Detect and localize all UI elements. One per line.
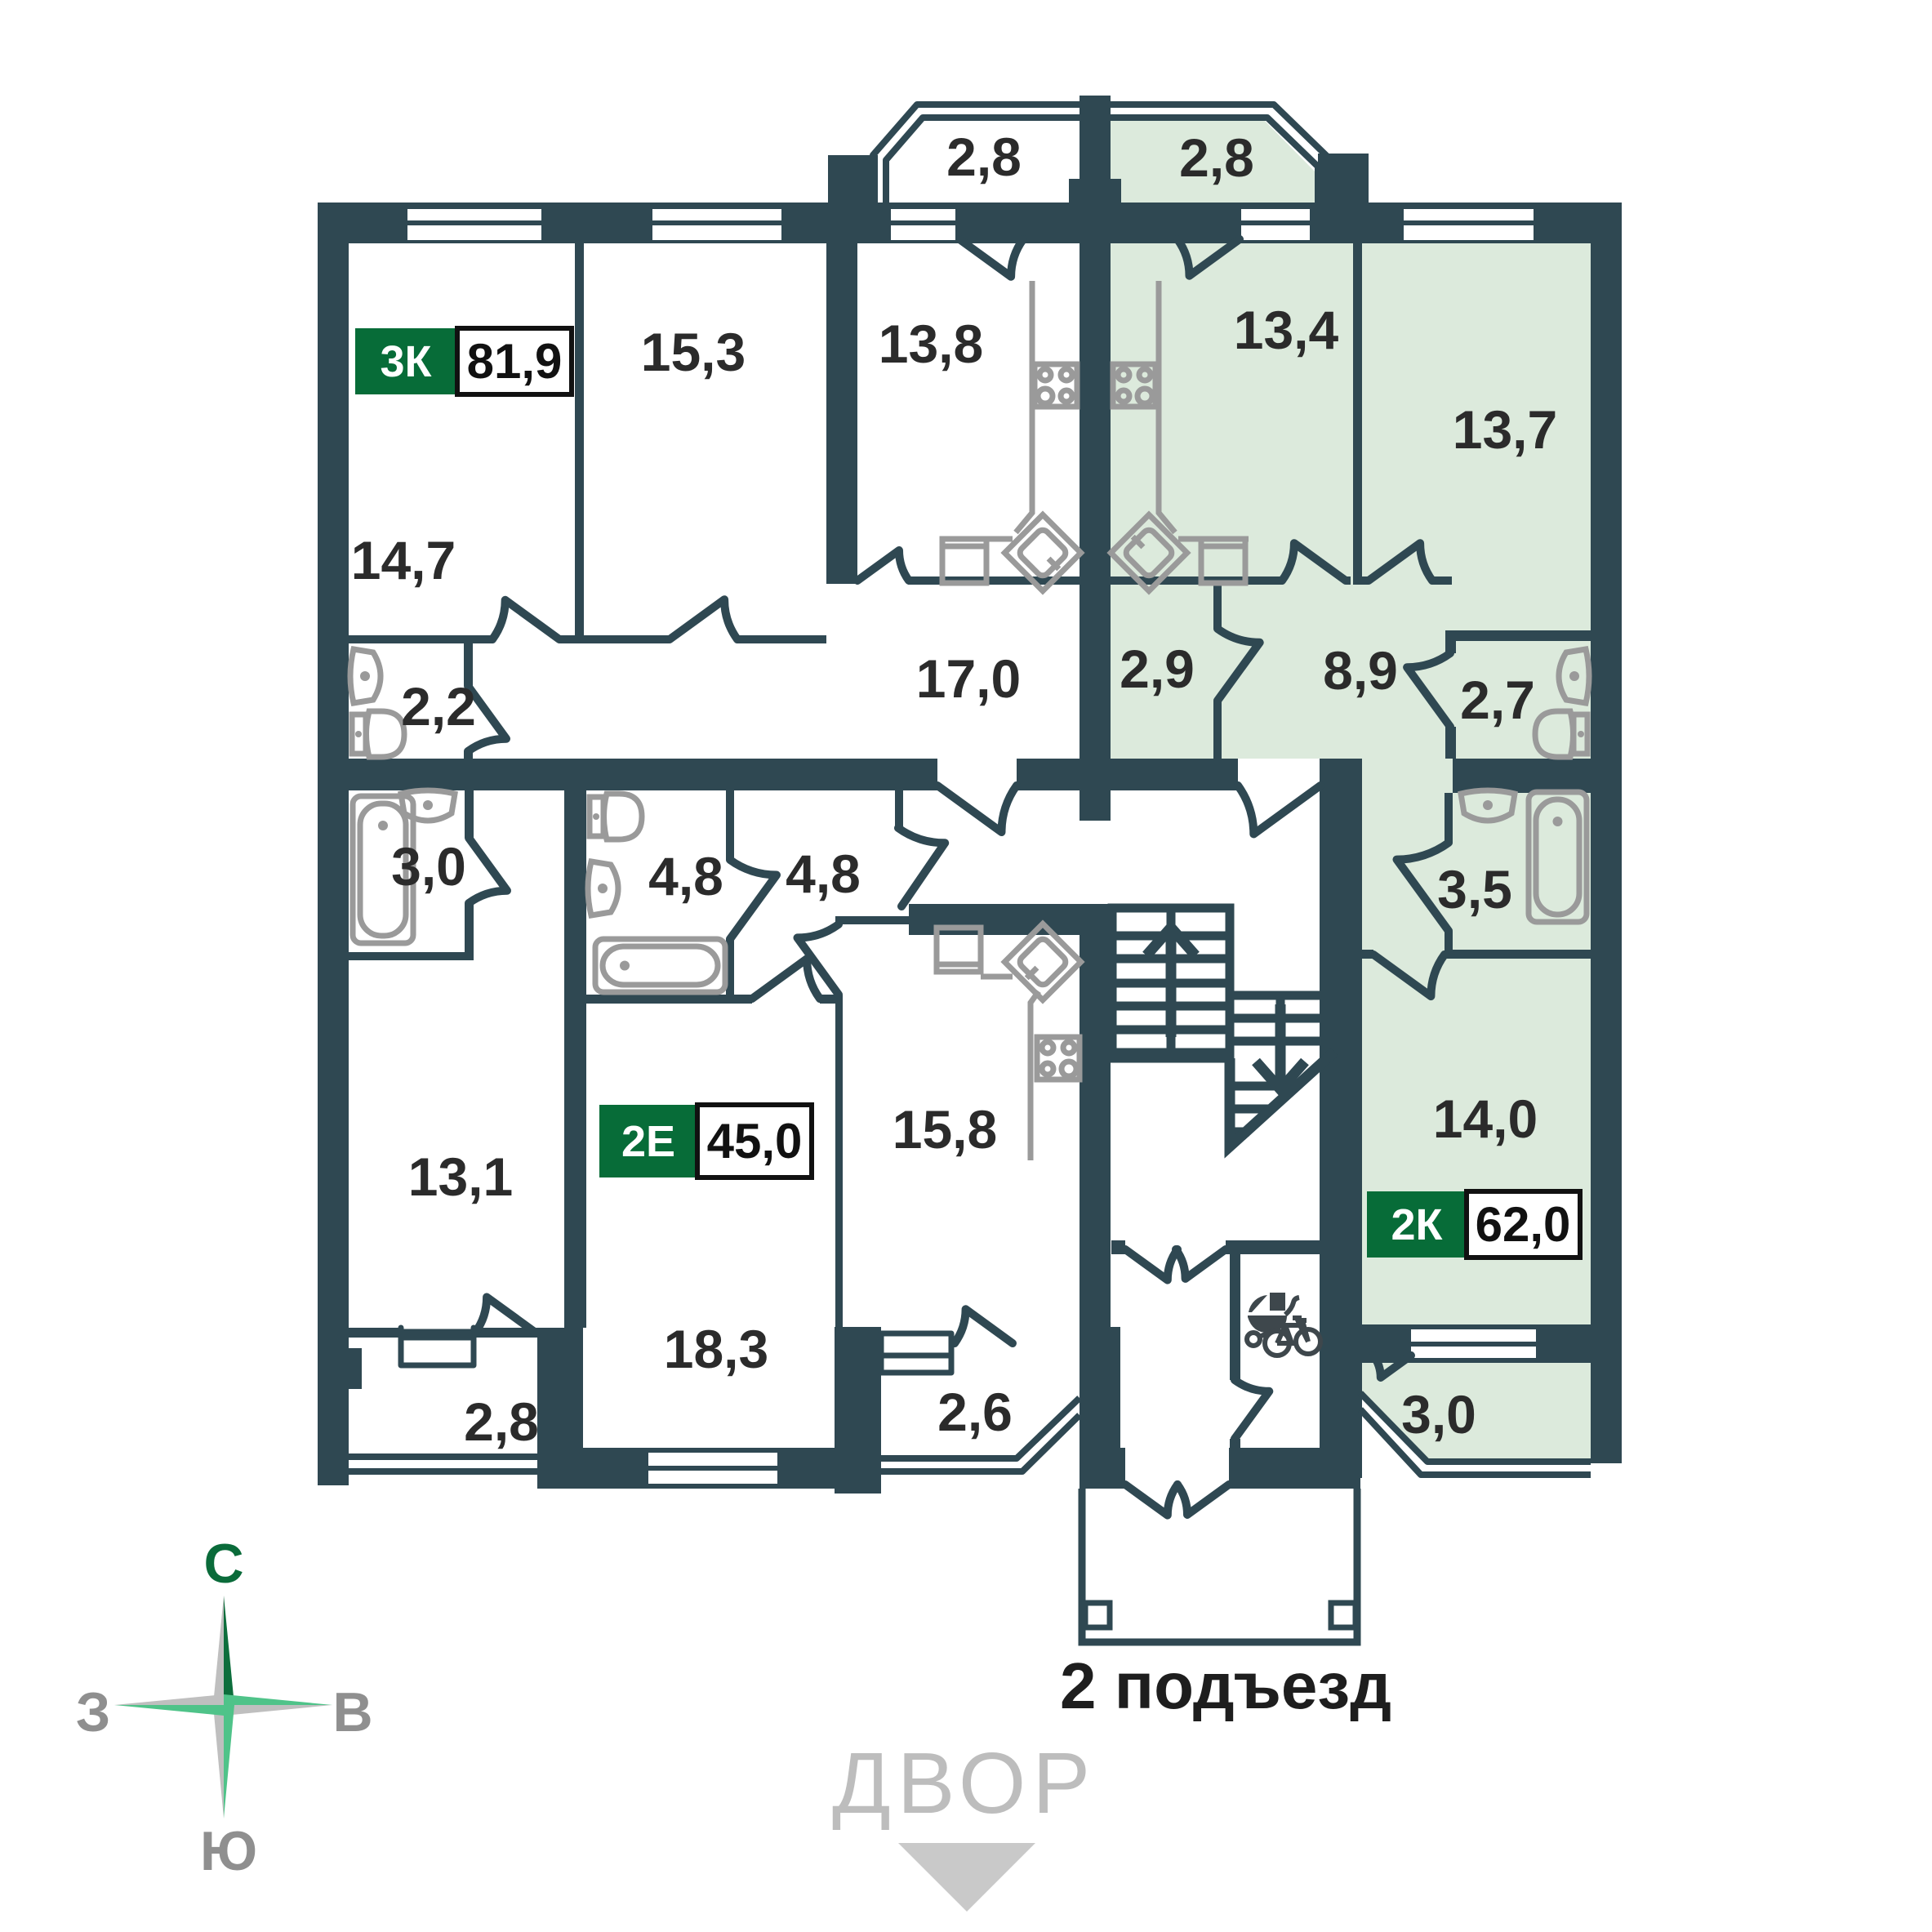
svg-text:Ю: Ю xyxy=(200,1820,257,1882)
svg-text:З: З xyxy=(76,1681,111,1743)
svg-text:2Е: 2Е xyxy=(621,1117,675,1166)
svg-text:2,7: 2,7 xyxy=(1460,670,1535,730)
svg-text:17,0: 17,0 xyxy=(916,648,1021,709)
svg-text:15,3: 15,3 xyxy=(641,322,746,382)
svg-text:3,0: 3,0 xyxy=(1401,1384,1476,1445)
svg-text:2,2: 2,2 xyxy=(401,676,476,737)
svg-text:62,0: 62,0 xyxy=(1476,1197,1571,1252)
svg-text:ДВОР: ДВОР xyxy=(832,1735,1097,1832)
svg-text:2,8: 2,8 xyxy=(464,1391,539,1452)
svg-text:С: С xyxy=(203,1533,243,1595)
svg-text:В: В xyxy=(332,1681,372,1743)
svg-text:14,0: 14,0 xyxy=(1433,1088,1538,1149)
svg-text:3К: 3К xyxy=(381,337,433,386)
svg-text:2К: 2К xyxy=(1391,1200,1444,1249)
svg-text:4,8: 4,8 xyxy=(786,844,861,904)
svg-text:2,9: 2,9 xyxy=(1120,639,1195,699)
svg-text:13,1: 13,1 xyxy=(408,1146,513,1207)
svg-text:2,8: 2,8 xyxy=(946,127,1022,187)
svg-text:4,8: 4,8 xyxy=(648,846,723,906)
svg-text:3,5: 3,5 xyxy=(1437,859,1512,919)
svg-text:45,0: 45,0 xyxy=(707,1114,803,1169)
svg-text:2,6: 2,6 xyxy=(937,1382,1013,1442)
svg-text:13,8: 13,8 xyxy=(879,314,983,374)
svg-text:15,8: 15,8 xyxy=(893,1099,997,1160)
svg-text:13,7: 13,7 xyxy=(1453,399,1557,460)
svg-text:2,8: 2,8 xyxy=(1179,127,1254,188)
svg-text:18,3: 18,3 xyxy=(664,1319,768,1379)
svg-text:2 подъезд: 2 подъезд xyxy=(1060,1649,1391,1722)
svg-text:3,0: 3,0 xyxy=(391,836,466,897)
svg-text:14,7: 14,7 xyxy=(351,530,456,590)
svg-text:81,9: 81,9 xyxy=(467,334,563,389)
svg-text:13,4: 13,4 xyxy=(1234,300,1339,360)
svg-text:8,9: 8,9 xyxy=(1323,640,1398,701)
